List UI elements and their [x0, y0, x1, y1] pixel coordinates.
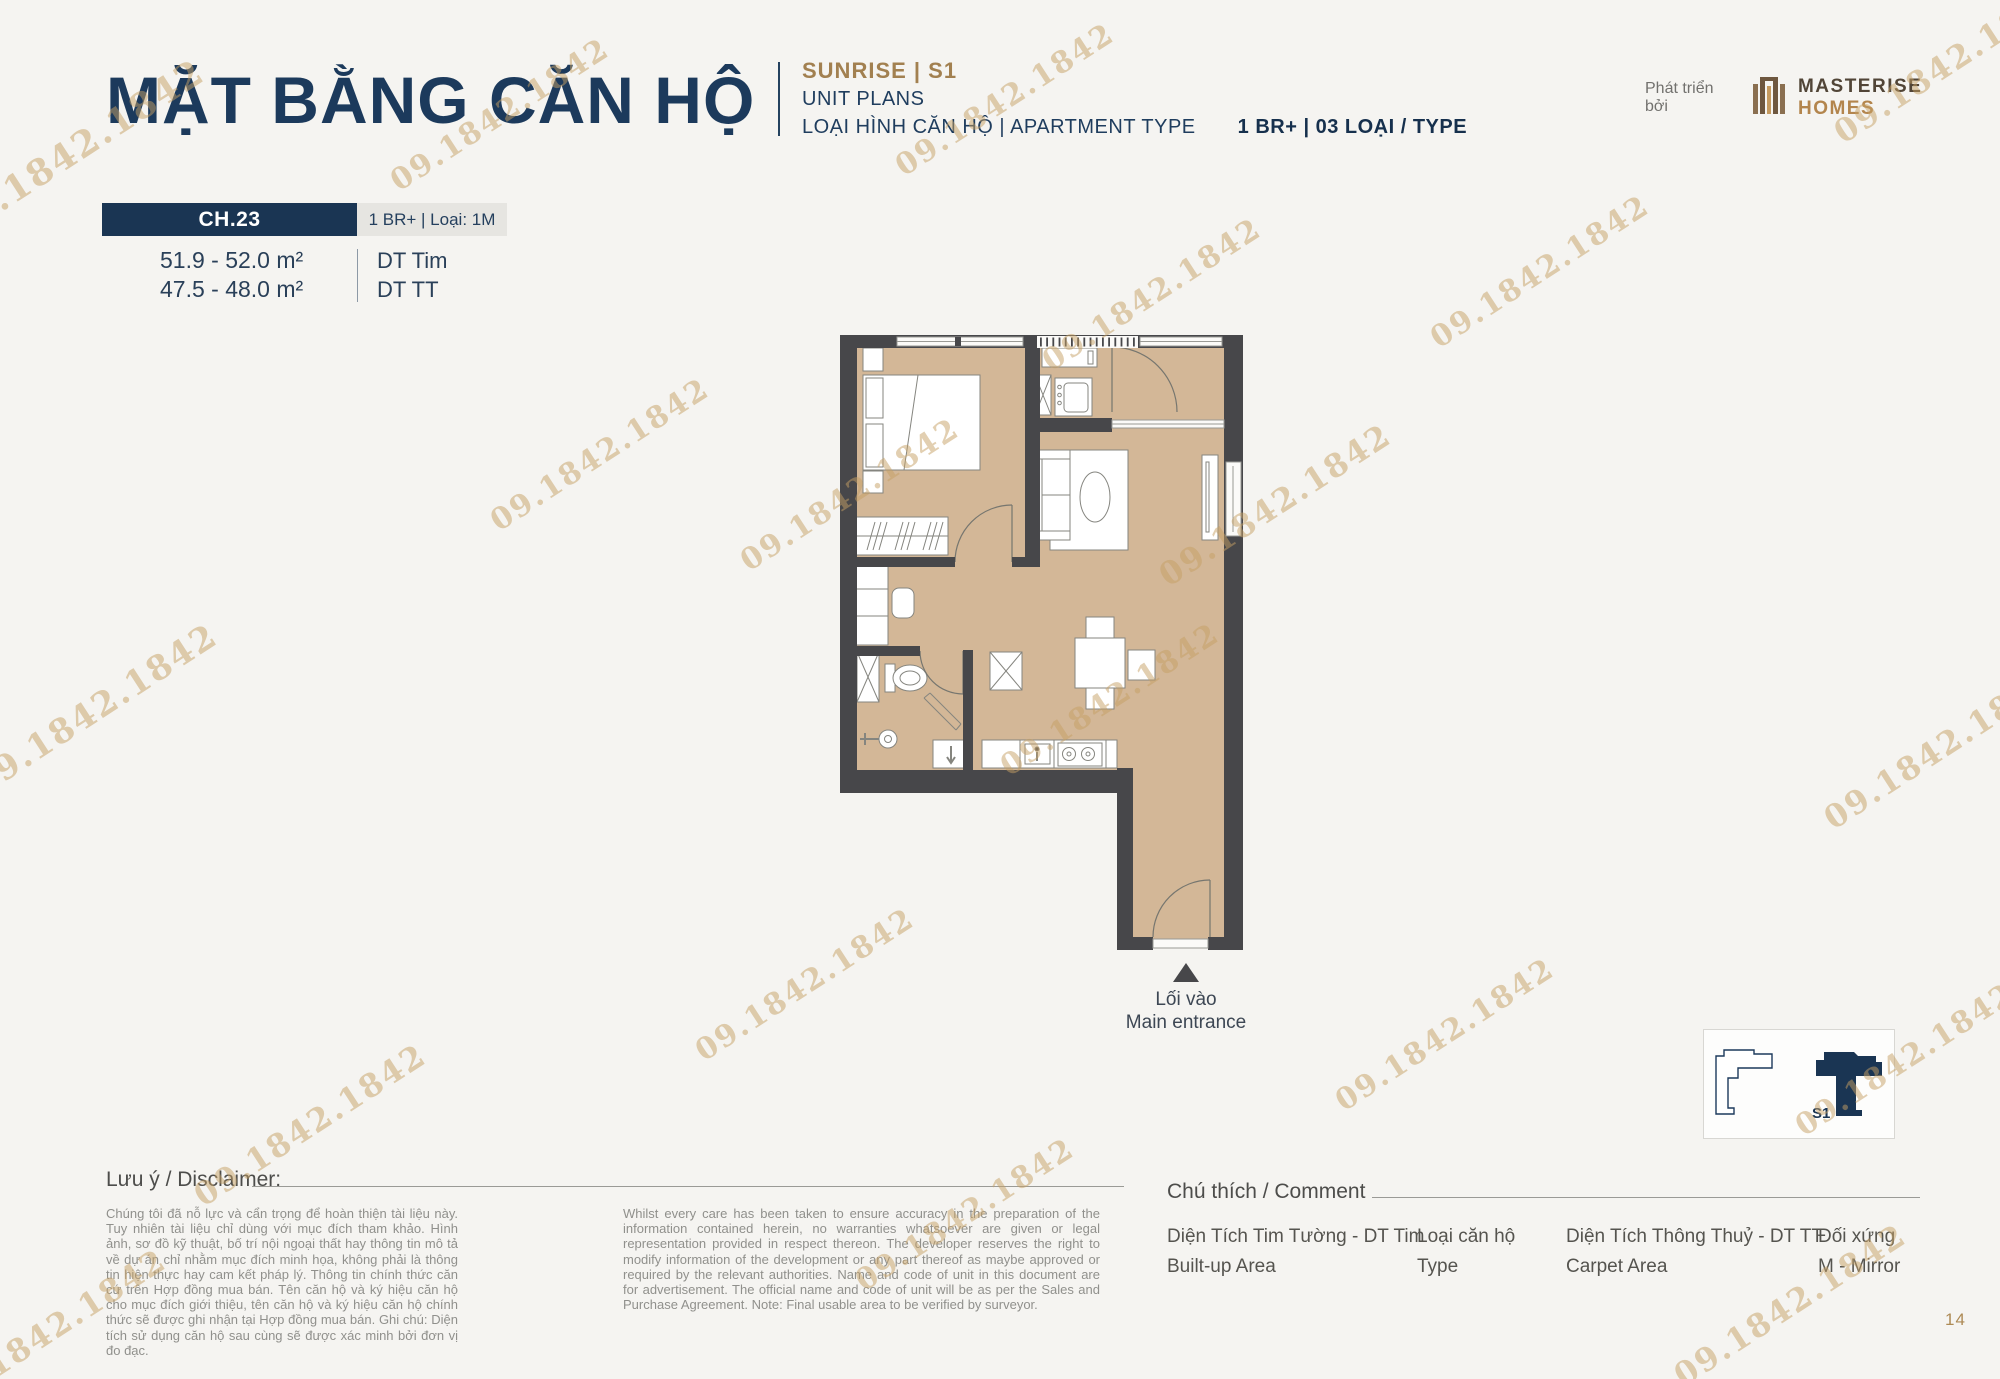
watermark: 09.1842.1842: [0, 616, 225, 804]
area-divider: [357, 249, 358, 302]
entrance-label-en: Main entrance: [1096, 1011, 1276, 1034]
utility-niche: [1035, 348, 1097, 416]
floor-plan-drawing: [840, 326, 1243, 950]
developer-logo: Phát triển bởi MASTERISE HOMES: [1645, 76, 2000, 120]
nightstand-icon: [863, 348, 883, 371]
wardrobe-icon: [855, 517, 948, 555]
shower-icon: [857, 652, 879, 702]
carpet-area-label: DT TT: [377, 277, 439, 303]
nightstand-icon-2: [863, 471, 883, 493]
oven-icon: [1055, 378, 1092, 416]
watermark: 09.1842.1842: [484, 371, 716, 538]
legend-heading: Chú thích / Comment: [1167, 1180, 1365, 1204]
project-name: SUNRISE | S1: [802, 58, 957, 84]
key-plan-label: S1: [1812, 1105, 1830, 1122]
apartment-type-label: LOẠI HÌNH CĂN HỘ | APARTMENT TYPE: [802, 116, 1196, 138]
cabinet-icon: [855, 562, 888, 645]
entrance-arrow-icon: [1173, 963, 1199, 982]
developer-label: Phát triển bởi: [1645, 80, 1738, 116]
kitchen-counter-icon: [982, 740, 1117, 768]
built-up-area-label: DT Tim: [377, 248, 447, 274]
floor-plan: [840, 326, 1243, 950]
coffee-table-icon: [1080, 472, 1110, 522]
disclaimer-text-vi: Chúng tôi đã nỗ lực và cẩn trọng để hoàn…: [106, 1206, 458, 1358]
legend-item-carpet: Diện Tích Thông Thuỷ - DT TT Carpet Area: [1566, 1222, 1823, 1282]
tv-console-icon: [1202, 455, 1218, 540]
legend-item-type: Loại căn hộ Type: [1417, 1222, 1515, 1282]
fridge-icon: [990, 652, 1022, 690]
desk-chair-icon: [892, 588, 914, 618]
header-divider: [778, 62, 780, 136]
page-title: MẶT BẰNG CĂN HỘ: [106, 62, 755, 138]
unit-variant-badge: 1 BR+ | Loại: 1M: [357, 203, 507, 236]
header-subtitle: UNIT PLANS: [802, 88, 924, 111]
legend-item-built-up: Diện Tích Tim Tường - DT Tim Built-up Ar…: [1167, 1222, 1424, 1282]
brand-name: MASTERISE HOMES: [1798, 76, 2000, 120]
disclaimer-heading: Lưu ý / Disclaimer:: [106, 1168, 281, 1192]
entrance-label: Lối vào Main entrance: [1096, 988, 1276, 1034]
watermark: 09.1842.1842: [1424, 188, 1656, 355]
unit-code-badge: CH.23: [102, 203, 357, 236]
bed-icon: [863, 375, 980, 470]
masterise-logo-icon: [1752, 76, 1786, 121]
watermark: 09.1842.1842: [1817, 659, 2000, 837]
key-plan-outline-building: [1716, 1050, 1772, 1114]
washer-icon: [1042, 348, 1097, 367]
apartment-type-line: LOẠI HÌNH CĂN HỘ | APARTMENT TYPE1 BR+ |…: [802, 116, 1467, 139]
brochure-page: MẶT BẰNG CĂN HỘ SUNRISE | S1 UNIT PLANS …: [0, 0, 2000, 1379]
built-up-area-value: 51.9 - 52.0 m²: [160, 247, 303, 274]
legend-rule: [1372, 1197, 1920, 1198]
watermark: 09.1842.1842: [1329, 951, 1561, 1118]
legend-item-mirror: Đối xứng M - Mirror: [1818, 1222, 1900, 1282]
apartment-type-value: 1 BR+ | 03 LOẠI / TYPE: [1238, 116, 1467, 138]
entrance-label-vi: Lối vào: [1096, 988, 1276, 1011]
disclaimer-text-en: Whilst every care has been taken to ensu…: [623, 1206, 1100, 1312]
vent-grille: [1037, 336, 1138, 348]
entrance-threshold: [1153, 939, 1208, 948]
toilet-icon: [885, 664, 927, 692]
page-number: 14: [1945, 1310, 1966, 1330]
carpet-area-value: 47.5 - 48.0 m²: [160, 276, 303, 303]
stove-icon: [1058, 743, 1102, 766]
disclaimer-rule: [252, 1186, 1124, 1187]
floor-corridor: [1128, 768, 1226, 941]
key-plan: S1: [1703, 1029, 1895, 1139]
